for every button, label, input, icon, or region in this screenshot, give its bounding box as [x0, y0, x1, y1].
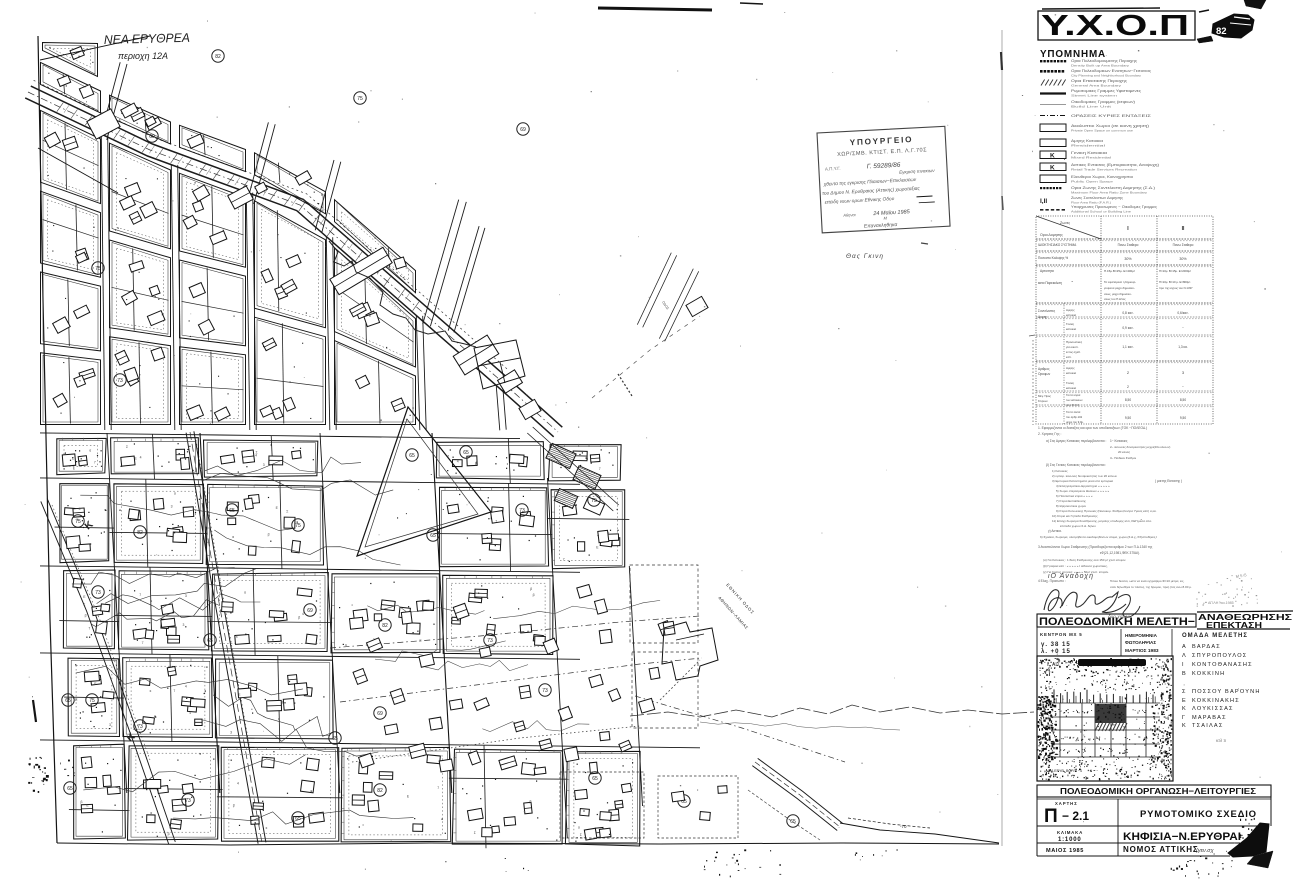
svg-text:Π=10μ. Β=15μ. Ε=2000μ²: Π=10μ. Β=15μ. Ε=2000μ²	[1159, 269, 1191, 273]
svg-text:Α.Π.Υ.Γ.: Α.Π.Υ.Γ.	[825, 166, 841, 172]
svg-text:β: β	[233, 803, 235, 807]
svg-text:κατοικια: κατοικια	[1066, 371, 1077, 375]
svg-text:7: 7	[258, 824, 260, 828]
svg-text:−: −	[1182, 326, 1184, 330]
svg-text:ΠΟΛΕΟΔΟΜΙΚΗ ΜΕΛΕΤΗ−: ΠΟΛΕΟΔΟΜΙΚΗ ΜΕΛΕΤΗ−	[1039, 616, 1195, 628]
svg-text:α) Στις Αμιγεις Κατοικιας περι: α) Στις Αμιγεις Κατοικιας περιλαμβανοντα…	[1046, 439, 1106, 443]
svg-text:Οροι Δομησης: Οροι Δομησης	[1040, 233, 1063, 237]
svg-text:Συντελεστες: Συντελεστες	[1038, 309, 1056, 313]
svg-text:75: 75	[75, 519, 81, 525]
svg-text:β) Στις Γενικες Κατοικιες περι: β) Στις Γενικες Κατοικιες περιλαμβανοντα…	[1046, 463, 1106, 467]
svg-text:Σ: Σ	[126, 445, 128, 449]
svg-text:α: α	[244, 590, 246, 594]
svg-text:Residential: Residential	[1071, 143, 1106, 147]
svg-text:Build Line Unit: Build Line Unit	[1071, 104, 1111, 108]
svg-text:−: −	[1182, 385, 1184, 389]
svg-text:1:1000: 1:1000	[1058, 837, 1081, 843]
svg-text:− 2.1: − 2.1	[1062, 809, 1089, 823]
svg-text:β: β	[298, 616, 300, 620]
svg-text:73: 73	[117, 378, 123, 384]
svg-text:3: 3	[263, 463, 265, 467]
svg-text:ΠΟΛΕΟΔΟΜΙΚΗ ΟΡΓΑΝΩΣΗ−ΛΕΙΤΟΥΡΓ: ΠΟΛΕΟΔΟΜΙΚΗ ΟΡΓΑΝΩΣΗ−ΛΕΙΤΟΥΡΓΙΕΣ	[1060, 786, 1256, 796]
svg-text:γουμενα μεχρι δημοσιευ-: γουμενα μεχρι δημοσιευ-	[1104, 286, 1135, 290]
svg-text:Αθηναι: Αθηναι	[842, 212, 856, 218]
svg-text:Retail Trade Services Recrea: Retail Trade Services Recreation	[1071, 167, 1137, 171]
svg-text:κατοικια: κατοικια	[1066, 327, 1077, 331]
svg-text:20 κλινες: 20 κλινες	[1118, 450, 1131, 454]
svg-text:Β: Β	[1182, 671, 1186, 677]
svg-text:1,3 κα.: 1,3 κα.	[1178, 345, 1188, 349]
svg-text:3: 3	[183, 623, 185, 627]
svg-text:μεχρι του 9,0μ.: μεχρι του 9,0μ.	[1066, 420, 1084, 424]
svg-text:β: β	[168, 832, 170, 836]
svg-text:75: 75	[295, 523, 301, 529]
svg-text:73: 73	[487, 638, 493, 644]
svg-text:β: β	[530, 587, 532, 591]
svg-text:73: 73	[542, 688, 548, 694]
svg-text:Π.15μ.Β=25μ. Ε=400μ²: Π.15μ.Β=25μ. Ε=400μ²	[1104, 269, 1135, 273]
svg-text:65: 65	[430, 533, 436, 539]
svg-text:εΦ(21,12,1981,ΦΕΚ 375ΑΙ).: εΦ(21,12,1981,ΦΕΚ 375ΑΙ).	[1100, 551, 1140, 555]
svg-text:82: 82	[137, 530, 143, 536]
svg-text:3: 3	[230, 730, 232, 734]
svg-text:Π=10μ. Β=10 μ. Ε=800μ².: Π=10μ. Β=10 μ. Ε=800μ².	[1159, 280, 1191, 284]
svg-text:Γενικη: Γενικη	[1066, 381, 1074, 385]
svg-text:73: 73	[519, 508, 525, 514]
svg-text:65: 65	[332, 736, 338, 742]
svg-text:7: 7	[563, 557, 565, 561]
svg-text:73: 73	[95, 590, 101, 596]
svg-text:Αρτιοτητα: Αρτιοτητα	[1040, 269, 1054, 273]
svg-text:α: α	[278, 717, 280, 721]
svg-text:Α: Α	[1182, 644, 1186, 650]
svg-text:4: 4	[79, 507, 81, 511]
svg-text:Public Open Space: Public Open Space	[1071, 179, 1113, 183]
svg-text:2. Χρησεις Γης :: 2. Χρησεις Γης :	[1038, 432, 1061, 436]
svg-text:ΤΣΑΙΛΑΣ: ΤΣΑΙΛΑΣ	[1192, 723, 1224, 729]
svg-text:73: 73	[137, 724, 143, 730]
svg-text:Κ: Κ	[1050, 164, 1055, 171]
svg-text:β: β	[268, 532, 270, 536]
svg-text:Γενικη: Γενικη	[1066, 322, 1074, 326]
svg-text:ΚΕΝΤΡΟΝ ΜΧ 5: ΚΕΝΤΡΟΝ ΜΧ 5	[1040, 632, 1083, 637]
svg-text:69: 69	[377, 711, 383, 717]
svg-text:ΚΗΦΙΣΙΑ−Ν.ΕΡΥΘΡΑΙ: ΚΗΦΙΣΙΑ−Ν.ΕΡΥΘΡΑΙ	[1123, 831, 1241, 843]
svg-text:ΛΟΥΚΙΣΣΑΣ: ΛΟΥΚΙΣΣΑΣ	[1192, 706, 1234, 712]
svg-text:ΟΜΑΔΑ ΜΕΛΕΤΗΣ: ΟΜΑΔΑ ΜΕΛΕΤΗΣ	[1182, 633, 1248, 639]
svg-text:65: 65	[65, 698, 71, 704]
svg-text:ΟΡΑΣΕΙΣ ΚΥΡΙΕΣ ΕΝΤΑΞΕΙΣ: ΟΡΑΣΕΙΣ ΚΥΡΙΕΣ ΕΝΤΑΞΕΙΣ	[1071, 113, 1152, 118]
svg-text:Θας Γκινη: Θας Γκινη	[846, 253, 884, 260]
svg-text:ΧΑΡΤΗΣ: ΧΑΡΤΗΣ	[1055, 801, 1078, 806]
svg-text:εντος σχεδ.: εντος σχεδ.	[1066, 350, 1081, 354]
svg-text:ΠΟΣΣΟΥ ΒΑΡΟΥΝΗ: ΠΟΣΣΟΥ ΒΑΡΟΥΝΗ	[1192, 689, 1261, 695]
svg-text:4: 4	[475, 461, 477, 465]
svg-text:Street Line system: Street Line system	[1071, 93, 1118, 97]
svg-text:ΜΑΙΟΣ 1985: ΜΑΙΟΣ 1985	[1046, 848, 1084, 854]
svg-text:4: 4	[189, 711, 191, 715]
svg-text:Σ: Σ	[286, 510, 288, 514]
svg-text:Ι,ΙΙ: Ι,ΙΙ	[1040, 198, 1047, 205]
svg-text:Floor Area Ratio (F.A.R.): Floor Area Ratio (F.A.R.)	[1071, 200, 1111, 204]
svg-text:4) Επαγγελματικα−Εργαστηρια: 4) Επαγγελματικα−Εργαστηρια « » » » »	[1056, 484, 1110, 488]
svg-text:3: 3	[185, 594, 187, 598]
svg-text:0,6/καν.: 0,6/καν.	[1177, 311, 1188, 315]
svg-text:Προσωπικες: Προσωπικες	[1066, 340, 1083, 344]
svg-text:( μικτης Εκτασης ): ( μικτης Εκτασης )	[1155, 479, 1182, 483]
svg-text:Σ: Σ	[72, 456, 74, 460]
svg-text:ΝΕΑ ΕΡΥΘΡΕΑ: ΝΕΑ ΕΡΥΘΡΕΑ	[104, 31, 190, 47]
svg-text:Κ: Κ	[1182, 706, 1186, 712]
svg-text:ΚΟΚΚΙΝΑΚΗΣ: ΚΟΚΚΙΝΑΚΗΣ	[1192, 698, 1240, 704]
svg-text:ΦΩΤΟΛΗΨΙΑΣ: ΦΩΤΟΛΗΨΙΑΣ	[1125, 640, 1156, 645]
svg-text:Σ: Σ	[1182, 689, 1186, 695]
svg-text:3: 3	[109, 723, 111, 727]
svg-text:Private Open Space on common u: Private Open Space on common use	[1071, 128, 1133, 132]
svg-text:α: α	[174, 492, 176, 496]
svg-text:σεως του Π.Δ/τος: σεως του Π.Δ/τος	[1104, 297, 1126, 301]
svg-text:7: 7	[437, 786, 439, 790]
svg-text:65: 65	[229, 508, 235, 514]
svg-text:8,50: 8,50	[1180, 398, 1186, 402]
svg-text:4: 4	[237, 782, 239, 786]
svg-text:ΚΟΝΤΟΘΑΝΑΣΗΣ: ΚΟΝΤΟΘΑΝΑΣΗΣ	[1192, 662, 1253, 668]
svg-text:α: α	[578, 825, 580, 829]
svg-text:1. Εφαρμοζονται οι διαταξεις κ: 1. Εφαρμοζονται οι διαταξεις και οροι τω…	[1038, 426, 1147, 430]
svg-text:1− Κατοικιες: 1− Κατοικιες	[1110, 439, 1128, 443]
svg-text:General Area Boundary: General Area Boundary	[1071, 83, 1122, 87]
svg-text:75: 75	[357, 96, 363, 102]
svg-text:ΚΟΚΚΙΝΗ: ΚΟΚΚΙΝΗ	[1192, 671, 1225, 677]
svg-text:0,8 καν.: 0,8 καν.	[1122, 311, 1133, 315]
svg-text:82: 82	[215, 54, 221, 60]
svg-text:Υ.Χ.Ο.Π: Υ.Χ.Ο.Π	[1041, 10, 1189, 42]
svg-text:οταν δηλωθηκε το πλατος, της δ: οταν δηλωθηκε το πλατος, της δρομου, προ…	[1110, 585, 1192, 589]
svg-text:Για τα κτιρια: Για τα κτιρια	[1066, 393, 1081, 397]
svg-text:65: 65	[463, 450, 469, 456]
svg-text:Για τα λοιπα: Για τα λοιπα	[1066, 410, 1081, 414]
svg-text:7: 7	[94, 461, 96, 465]
svg-text:Ζωνες: Ζωνες	[1060, 221, 1070, 225]
svg-text:(γεν.σχ: (γεν.σχ	[1196, 848, 1215, 854]
svg-text:7: 7	[142, 641, 144, 645]
svg-text:8) Θρησκευτικοι χωροι: 8) Θρησκευτικοι χωροι	[1056, 504, 1086, 508]
svg-text:Τετοιο δινεται, ωστε να ειναι: Τετοιο δινεται, ωστε να ειναι εγγραψιμο …	[1110, 579, 1184, 583]
svg-text:Αμιγης: Αμιγης	[1066, 366, 1075, 370]
svg-text:10) Κτιρια και Γηπεδα Σταθμευσ: 10) Κτιρια και Γηπεδα Σταθμευσης	[1052, 514, 1098, 518]
svg-text:3: 3	[171, 505, 173, 509]
svg-text:του αρθρ.102: του αρθρ.102	[1066, 415, 1083, 419]
svg-text:Σ: Σ	[474, 831, 476, 835]
svg-text:Οροφων: Οροφων	[1038, 372, 1051, 376]
svg-text:ΣΠΥΡΟΠΟΥΛΟΣ: ΣΠΥΡΟΠΟΥΛΟΣ	[1192, 653, 1247, 659]
svg-text:β: β	[530, 800, 532, 804]
svg-text:69: 69	[307, 608, 313, 614]
svg-text:περιοχη 12Α: περιοχη 12Α	[118, 51, 168, 61]
svg-text:5) Χωροι στεγασμενοι Θεσεων: 5) Χωροι στεγασμενοι Θεσεων « » » » »	[1056, 489, 1109, 493]
svg-text:Ε: Ε	[1182, 698, 1186, 704]
svg-text:4: 4	[457, 459, 459, 463]
svg-text:ΑΓΙΛΗ ποι.1985: ΑΓΙΛΗ ποι.1985	[1208, 601, 1234, 605]
svg-text:3) Εμπορικα Καταστηματα: 3) Εμπορικα Καταστηματα μεσα στα εμπορικ…	[1052, 479, 1113, 483]
svg-text:Δομης: Δομης	[1038, 315, 1048, 319]
svg-text:Κτιριων: Κτιριων	[1038, 399, 1048, 403]
svg-text:69: 69	[149, 134, 155, 140]
svg-text:9,50: 9,50	[1125, 416, 1131, 420]
svg-text:65: 65	[67, 786, 73, 792]
svg-text:β: β	[533, 593, 535, 597]
svg-text:απο Φ.Ο.Κ.: απο Φ.Ο.Κ.	[1066, 403, 1080, 407]
svg-text:Maximum Floor Area Ratio: Maximum Floor Area Ratio Zone Boundary	[1071, 190, 1148, 194]
svg-text:β: β	[81, 800, 83, 804]
svg-text:κλπ.: κλπ.	[1066, 355, 1072, 359]
svg-text:Π: Π	[1044, 806, 1058, 827]
svg-text:2) εμπορ. Ξενωνες δυναμικοτη: 2) εμπορ. Ξενωνες δυναμικοτητας των 20 κ…	[1052, 474, 1117, 478]
svg-text:γ) Αστικα.: γ) Αστικα.	[1048, 529, 1062, 533]
svg-text:Κ: Κ	[1182, 723, 1186, 729]
svg-text:Σ: Σ	[256, 450, 258, 454]
svg-text:75: 75	[89, 698, 95, 704]
svg-text:ΙΔΙΟΚΤΗΣΙΑΚΟ ΣΥΣΤΗΜΑ: ΙΔΙΟΚΤΗΣΙΑΚΟ ΣΥΣΤΗΜΑ	[1038, 243, 1077, 247]
svg-text:ΜΑΡΤΙΟΣ 1983: ΜΑΡΤΙΟΣ 1983	[1125, 648, 1159, 654]
svg-text:30%: 30%	[1124, 257, 1132, 261]
svg-text:κατοικια: κατοικια	[1066, 386, 1077, 390]
svg-text:(α) Για Κατοικιες :: (α) Για Κατοικιες : 1 θεση Σταθμευσης αν…	[1043, 558, 1126, 562]
svg-text:1) Κατοικιες: 1) Κατοικιες	[1052, 469, 1068, 473]
svg-text:κατα Παρεκκλιση: κατα Παρεκκλιση	[1038, 281, 1062, 285]
svg-text:Σ: Σ	[83, 602, 85, 606]
svg-text:ιΟ Άναδοχη: ιΟ Άναδοχη	[1048, 573, 1094, 580]
svg-text:11) Επαγγ.Χωρισμα Συναθροισης,: 11) Επαγγ.Χωρισμα Συναθροισης, μεγαλης υ…	[1052, 519, 1152, 523]
svg-text:-70: -70	[900, 824, 907, 829]
svg-text:Μεγ.Υψος: Μεγ.Υψος	[1038, 394, 1052, 398]
svg-text:7: 7	[495, 519, 497, 523]
svg-text:γ. 38 15: γ. 38 15	[1041, 642, 1071, 648]
svg-text:Ποσοστο Καλυψης %: Ποσοστο Καλυψης %	[1038, 256, 1068, 260]
svg-text:2: 2	[1127, 385, 1129, 389]
svg-text:City Planning and Neighborhood: City Planning and Neighborhood Boundary	[1071, 73, 1142, 77]
svg-text:κ: κ	[266, 826, 268, 830]
svg-text:9) Κτιρια Κοινωνικης Προνοια: 9) Κτιρια Κοινωνικης Προνοιας (Νοσοκομ. …	[1056, 509, 1157, 513]
svg-text:Κ: Κ	[1050, 152, 1055, 159]
svg-text:Αριθμος: Αριθμος	[1038, 367, 1050, 371]
svg-text:ΝΕΑ ΕΡΥΘ. ΒΟΡ/Σ −4: ΝΕΑ ΕΡΥΘ. ΒΟΡ/Σ −4	[1046, 769, 1082, 773]
svg-text:προ της ισχυος του Ν.1337: προ της ισχυος του Ν.1337	[1159, 286, 1193, 290]
svg-text:1,1 καν.: 1,1 καν.	[1122, 345, 1133, 349]
svg-text:ΒΑΡΔΑΣ: ΒΑΡΔΑΣ	[1192, 644, 1221, 650]
svg-text:δ) Σχολεια, Χωρισμα, υλοτμηθεν: δ) Σχολεια, Χωρισμα, υλοτμηθεντα οικοδομ…	[1040, 535, 1157, 539]
svg-text:82: 82	[377, 788, 383, 794]
svg-text:Αμιγης: Αμιγης	[1066, 308, 1075, 312]
svg-text:Πανω Σταθερο: Πανω Σταθερο	[1118, 243, 1139, 247]
svg-text:7: 7	[599, 467, 601, 471]
svg-text:ΡΥΜΟΤΟΜΙΚΟ ΣΧΕΔΙΟ: ΡΥΜΟΤΟΜΙΚΟ ΣΧΕΔΙΟ	[1140, 809, 1257, 820]
svg-text:8,50: 8,50	[1125, 398, 1131, 402]
svg-text:α: α	[232, 535, 234, 539]
svg-text:β: β	[85, 614, 87, 618]
svg-text:4: 4	[185, 685, 187, 689]
svg-text:4: 4	[302, 612, 304, 616]
svg-text:9,50: 9,50	[1180, 416, 1186, 420]
svg-text:κ: κ	[150, 689, 152, 693]
svg-text:7: 7	[75, 698, 77, 702]
svg-text:7: 7	[139, 593, 141, 597]
svg-text:30%: 30%	[1179, 257, 1187, 261]
svg-text:82: 82	[382, 623, 388, 629]
svg-text:Additional School or Building: Additional School or Building Line	[1071, 209, 1131, 213]
svg-text:Mixed Residential: Mixed Residential	[1071, 155, 1112, 159]
svg-text:κατοικια: κατοικια	[1066, 313, 1077, 317]
svg-text:7) Κτιρια Εκπαιδευσης: 7) Κτιρια Εκπαιδευσης	[1056, 499, 1086, 503]
svg-text:4: 4	[140, 456, 142, 460]
svg-text:65: 65	[409, 453, 415, 459]
svg-text:7: 7	[88, 626, 90, 630]
svg-text:73: 73	[185, 798, 191, 804]
svg-text:3 Αναστειλονται Χωροι Σταθμ: 3 Αναστειλονται Χωροι Σταθμευσης (Προσδι…	[1038, 545, 1153, 549]
svg-text:Density Built up Area Boundary: Density Built up Area Boundary	[1071, 63, 1130, 67]
svg-text:6) Πολιτιστικα κτιρια: 6) Πολιτιστικα κτιρια « » » «	[1056, 494, 1093, 498]
svg-text:65: 65	[592, 776, 598, 782]
svg-text:α: α	[567, 538, 569, 542]
svg-text:Πανω Σταθερο: Πανω Σταθερο	[1173, 243, 1194, 247]
svg-text:α: α	[89, 448, 91, 452]
svg-text:λ. +0 15: λ. +0 15	[1041, 649, 1071, 655]
svg-text:82: 82	[1216, 26, 1227, 37]
svg-text:75: 75	[591, 498, 597, 504]
svg-text:ΗΜΕΡΟΜΗΝΙΑ: ΗΜΕΡΟΜΗΝΙΑ	[1125, 633, 1158, 638]
svg-text:σεως, μεχρι δημοσιευ-: σεως, μεχρι δημοσιευ-	[1104, 292, 1132, 296]
svg-text:κτλ τι: κτλ τι	[1216, 738, 1226, 743]
svg-text:75: 75	[95, 266, 101, 272]
svg-text:ΜΑΡΑΒΑΣ: ΜΑΡΑΒΑΣ	[1192, 715, 1227, 721]
svg-text:Σ: Σ	[580, 833, 582, 837]
svg-text:ΚΛΙΜΑΚΑ: ΚΛΙΜΑΚΑ	[1057, 830, 1083, 835]
svg-text:Σ: Σ	[608, 532, 610, 536]
svg-text:0,9 καν.: 0,9 καν.	[1122, 326, 1133, 330]
svg-text:Λ: Λ	[1182, 653, 1186, 659]
svg-text:των κατοικιων: των κατοικιων	[1066, 398, 1083, 402]
svg-text:α: α	[150, 811, 152, 815]
svg-text:Γ: Γ	[1182, 715, 1185, 721]
svg-text:69: 69	[520, 127, 526, 133]
svg-text:Τα υφισταμενα η δημιουρ-: Τα υφισταμενα η δημιουρ-	[1104, 280, 1136, 284]
svg-text:για οικοπ.: για οικοπ.	[1066, 345, 1079, 349]
svg-text:ΝΟΜΟΣ ΑΤΤΙΚΗΣ: ΝΟΜΟΣ ΑΤΤΙΚΗΣ	[1123, 845, 1198, 854]
svg-text:επιπεδα χωρου Σ.Δ. δηλου: επιπεδα χωρου Σ.Δ. δηλου	[1060, 524, 1096, 528]
svg-text:7: 7	[173, 689, 175, 693]
svg-text:65: 65	[295, 816, 301, 822]
svg-text:2− Ξενωνες δυναμικοτητας μεχρι: 2− Ξενωνες δυναμικοτητας μεχρι(20ο κλινω…	[1110, 445, 1170, 449]
svg-text:ΑΙΣ: ΑΙΣ	[1052, 662, 1060, 668]
svg-text:65: 65	[207, 638, 213, 644]
svg-text:(β) Γραφεια κλπ :: (β) Γραφεια κλπ : « » » » » Ι αιθουσα χω…	[1043, 564, 1108, 568]
svg-text:3− Παιδικοι Σταθμοι: 3− Παιδικοι Σταθμοι	[1110, 456, 1136, 460]
